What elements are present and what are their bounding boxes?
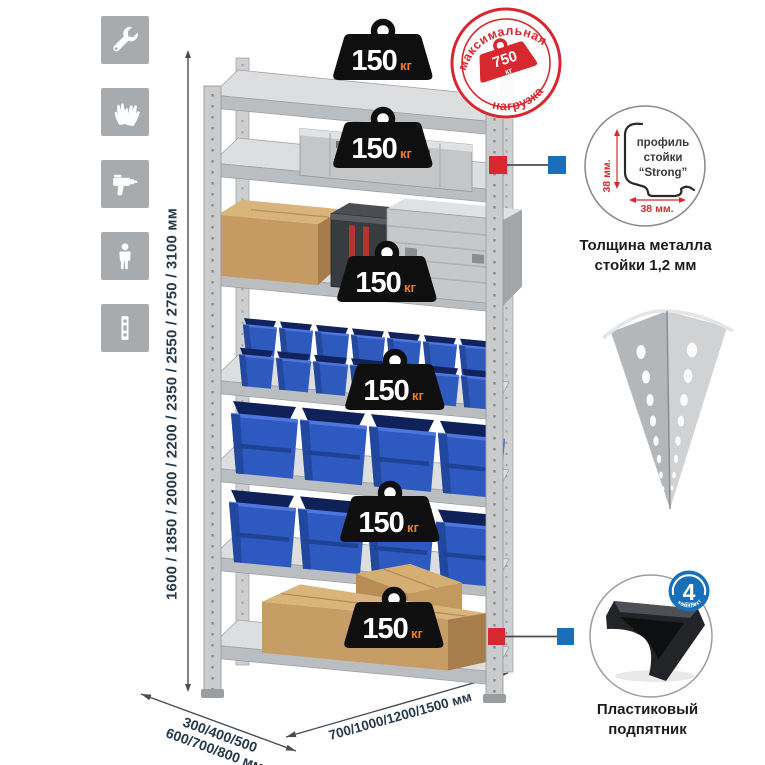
wrench-icon: [110, 25, 140, 55]
shelf-load-badge: 150 кг: [333, 22, 432, 80]
load-unit: кг: [404, 280, 417, 295]
load-unit: кг: [412, 388, 425, 403]
load-unit: кг: [400, 146, 413, 161]
icon-tile: [101, 160, 149, 208]
load-value: 150: [358, 507, 403, 539]
metal-thickness-line2: стойки 1,2 мм: [558, 256, 733, 276]
cardboard-box: [218, 198, 342, 288]
plastic-foot-line2: подпятник: [560, 720, 735, 740]
plastic-foot-line1: Пластиковый: [560, 700, 735, 720]
icon-tile: [101, 16, 149, 64]
profile-label-line2: стойки: [644, 152, 683, 164]
drill-icon: [110, 169, 140, 199]
plastic-foot-caption: Пластиковый подпятник: [560, 700, 735, 739]
profile-label-line1: профиль: [637, 137, 690, 149]
load-unit: кг: [400, 58, 413, 73]
included-count-badge: 4 штуки в комплекте: [669, 571, 710, 612]
corner-post-photo: [603, 311, 733, 509]
load-value: 150: [355, 267, 400, 299]
height-dimensions-label: 1600 / 1850 / 2000 / 2200 / 2350 / 2550 …: [164, 208, 181, 600]
red-square-marker: [489, 156, 507, 174]
red-square-marker: [488, 628, 505, 645]
product-infographic: 150 кг 150 кг 150 кг 150 кг: [0, 0, 765, 765]
person-icon: [110, 241, 140, 271]
icon-tile: [101, 88, 149, 136]
profile-strip-icon: [110, 313, 140, 343]
load-value: 150: [362, 613, 407, 645]
gloves-icon: [110, 97, 140, 127]
blue-square-marker: [548, 156, 566, 174]
post-profile-detail: 38 мм. 38 мм. профиль стойки “Strong”: [585, 106, 705, 226]
profile-label-line3: “Strong”: [639, 167, 688, 179]
blue-square-marker: [557, 628, 574, 645]
profile-dim-vertical: 38 мм.: [601, 159, 613, 192]
icon-tile: [101, 232, 149, 280]
load-unit: кг: [407, 520, 420, 535]
icon-tile: [101, 304, 149, 352]
metal-thickness-caption: Толщина металла стойки 1,2 мм: [558, 236, 733, 275]
foot-callout-connector: [488, 628, 574, 645]
load-unit: кг: [411, 626, 424, 641]
profile-callout-connector: [489, 156, 566, 174]
profile-dim-horizontal: 38 мм.: [640, 203, 673, 215]
load-value: 150: [351, 45, 396, 77]
load-value: 150: [351, 133, 396, 165]
metal-thickness-line1: Толщина металла: [558, 236, 733, 256]
plastic-foot-detail: 4 штуки в комплекте: [590, 571, 712, 698]
load-value: 150: [363, 375, 408, 407]
